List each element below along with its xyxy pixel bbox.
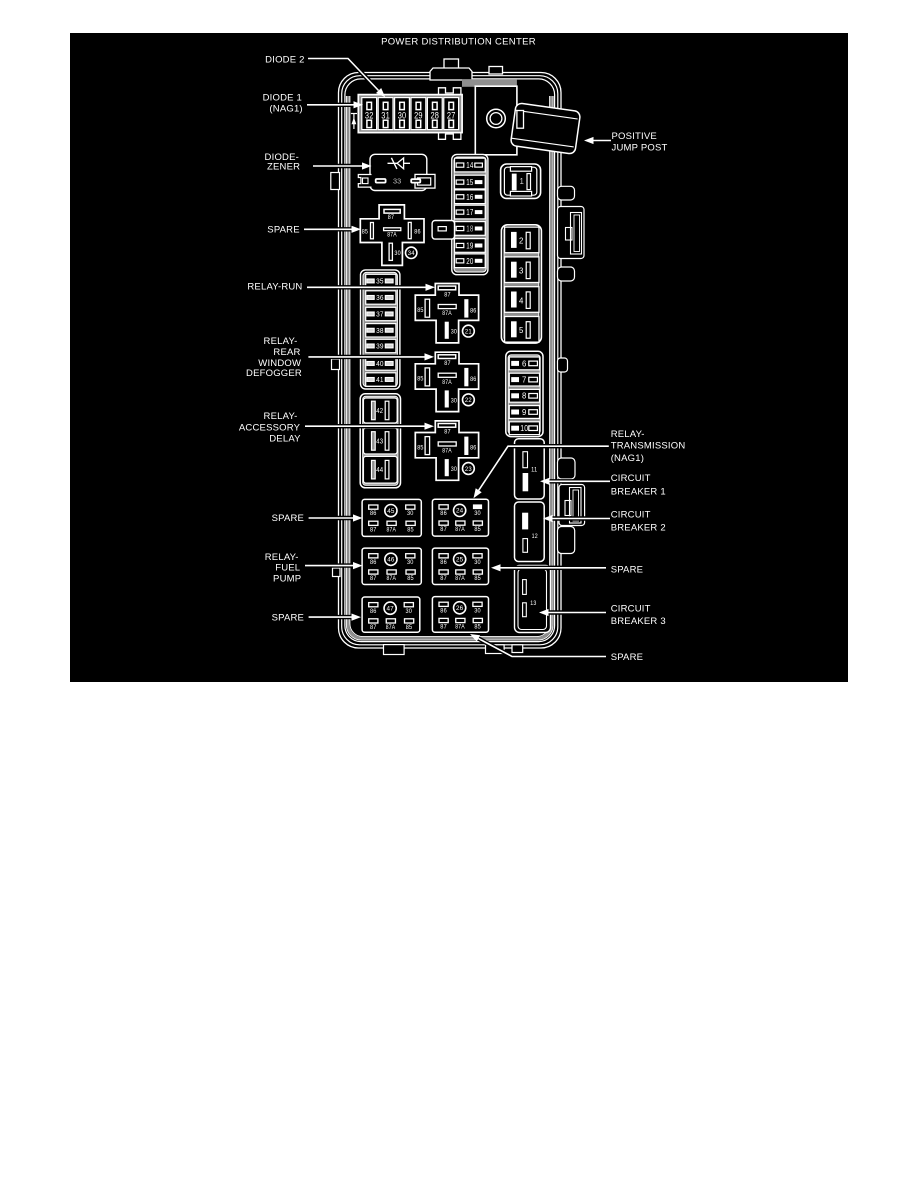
svg-text:87: 87: [440, 624, 447, 631]
svg-text:85: 85: [406, 624, 413, 631]
svg-text:46: 46: [387, 557, 394, 564]
svg-text:6: 6: [522, 359, 527, 368]
svg-text:SPARE: SPARE: [611, 652, 644, 663]
svg-text:85: 85: [417, 444, 424, 451]
svg-text:8: 8: [522, 392, 527, 401]
svg-text:87: 87: [370, 526, 377, 533]
svg-text:45: 45: [387, 508, 394, 515]
svg-text:DEFOGGER: DEFOGGER: [246, 368, 302, 379]
svg-text:CIRCUIT: CIRCUIT: [611, 510, 651, 521]
svg-text:87: 87: [444, 360, 451, 367]
svg-text:87: 87: [444, 429, 451, 436]
svg-text:30: 30: [451, 329, 458, 336]
svg-text:11: 11: [531, 467, 537, 474]
svg-text:37: 37: [376, 310, 384, 319]
svg-text:RELAY-: RELAY-: [264, 336, 298, 347]
svg-text:BREAKER 2: BREAKER 2: [611, 523, 666, 534]
svg-text:DIODE 1: DIODE 1: [263, 92, 302, 103]
svg-text:21: 21: [465, 328, 472, 335]
svg-text:ACCESSORY: ACCESSORY: [239, 423, 301, 434]
svg-text:86: 86: [414, 228, 421, 235]
svg-text:24: 24: [456, 508, 463, 515]
svg-text:86: 86: [440, 559, 447, 566]
svg-text:36: 36: [376, 293, 384, 302]
svg-text:(NAG1): (NAG1): [611, 453, 644, 464]
svg-text:23: 23: [465, 466, 472, 473]
svg-text:86: 86: [370, 559, 377, 566]
svg-text:87A: 87A: [442, 310, 452, 317]
svg-text:(NAG1): (NAG1): [269, 104, 302, 115]
svg-text:30: 30: [474, 607, 481, 614]
svg-text:5: 5: [519, 326, 524, 335]
svg-text:85: 85: [407, 575, 414, 582]
svg-text:9: 9: [522, 408, 527, 417]
svg-text:RELAY-RUN: RELAY-RUN: [247, 282, 302, 293]
svg-text:85: 85: [474, 526, 481, 533]
svg-text:87: 87: [444, 291, 451, 298]
svg-text:86: 86: [470, 445, 477, 452]
svg-text:17: 17: [466, 208, 473, 217]
svg-text:87A: 87A: [455, 624, 465, 631]
svg-text:87A: 87A: [442, 448, 452, 455]
svg-text:25: 25: [456, 557, 463, 564]
svg-text:85: 85: [362, 228, 369, 235]
svg-text:27: 27: [447, 110, 456, 120]
svg-text:14: 14: [466, 161, 473, 170]
svg-text:JUMP POST: JUMP POST: [612, 143, 668, 154]
svg-text:86: 86: [370, 510, 377, 517]
svg-text:85: 85: [474, 575, 481, 582]
svg-text:30: 30: [451, 397, 458, 404]
svg-text:RELAY-: RELAY-: [265, 552, 299, 563]
svg-text:4: 4: [519, 296, 524, 305]
svg-text:40: 40: [376, 359, 384, 368]
svg-text:2: 2: [519, 237, 524, 246]
svg-text:86: 86: [370, 608, 377, 615]
svg-text:34: 34: [408, 250, 415, 257]
svg-text:1: 1: [520, 177, 525, 186]
svg-text:86: 86: [440, 607, 447, 614]
svg-text:30: 30: [407, 559, 414, 566]
svg-text:CIRCUIT: CIRCUIT: [611, 603, 651, 614]
svg-text:12: 12: [532, 533, 538, 540]
svg-text:POSITIVE: POSITIVE: [612, 131, 657, 142]
svg-text:85: 85: [474, 624, 481, 631]
svg-text:REAR: REAR: [273, 347, 300, 358]
svg-text:85: 85: [407, 526, 414, 533]
svg-text:18: 18: [466, 225, 473, 234]
svg-text:BREAKER 3: BREAKER 3: [611, 616, 666, 627]
svg-text:28: 28: [431, 110, 440, 120]
svg-text:DELAY: DELAY: [269, 433, 301, 444]
svg-text:PUMP: PUMP: [273, 574, 301, 585]
svg-text:87: 87: [440, 526, 447, 533]
svg-text:3: 3: [519, 267, 524, 276]
svg-text:30: 30: [406, 608, 413, 615]
svg-text:13: 13: [530, 600, 536, 607]
svg-text:87: 87: [370, 575, 377, 582]
svg-text:87A: 87A: [387, 232, 397, 239]
svg-text:32: 32: [365, 110, 374, 120]
svg-text:85: 85: [417, 307, 424, 314]
svg-text:87: 87: [370, 624, 377, 631]
svg-text:41: 41: [376, 375, 384, 384]
svg-text:19: 19: [466, 242, 473, 251]
svg-text:31: 31: [381, 110, 390, 120]
svg-text:DIODE 2: DIODE 2: [265, 54, 304, 65]
svg-text:39: 39: [376, 342, 384, 351]
svg-text:SPARE: SPARE: [267, 224, 300, 235]
svg-text:22: 22: [465, 397, 472, 404]
svg-text:FUEL: FUEL: [275, 563, 300, 574]
svg-text:87A: 87A: [387, 526, 397, 533]
svg-text:POWER DISTRIBUTION CENTER: POWER DISTRIBUTION CENTER: [381, 36, 536, 47]
svg-text:87: 87: [440, 575, 447, 582]
svg-text:30: 30: [398, 110, 407, 120]
svg-text:87A: 87A: [455, 575, 465, 582]
svg-text:15: 15: [466, 178, 473, 187]
svg-text:30: 30: [407, 510, 414, 517]
svg-text:SPARE: SPARE: [611, 564, 644, 575]
svg-text:RELAY-: RELAY-: [611, 429, 645, 440]
svg-text:44: 44: [376, 467, 383, 474]
svg-text:33: 33: [393, 177, 402, 186]
svg-text:26: 26: [456, 605, 463, 612]
svg-text:30: 30: [451, 466, 458, 473]
svg-text:87A: 87A: [386, 624, 396, 631]
svg-text:ZENER: ZENER: [267, 161, 300, 172]
svg-text:38: 38: [376, 326, 384, 335]
svg-text:47: 47: [386, 606, 393, 613]
svg-text:BREAKER 1: BREAKER 1: [611, 486, 666, 497]
svg-text:85: 85: [417, 376, 424, 383]
svg-text:CIRCUIT: CIRCUIT: [611, 473, 651, 484]
svg-text:30: 30: [474, 510, 481, 517]
svg-text:30: 30: [474, 559, 481, 566]
svg-text:87A: 87A: [387, 575, 397, 582]
svg-text:TRANSMISSION: TRANSMISSION: [611, 441, 686, 452]
svg-text:16: 16: [466, 193, 473, 202]
svg-text:42: 42: [376, 408, 383, 415]
svg-text:30: 30: [394, 250, 401, 257]
svg-text:86: 86: [440, 510, 447, 517]
svg-text:10: 10: [520, 424, 528, 433]
svg-text:43: 43: [376, 438, 383, 445]
svg-text:87A: 87A: [455, 526, 465, 533]
svg-text:7: 7: [522, 376, 527, 385]
svg-text:86: 86: [470, 307, 477, 314]
svg-text:RELAY-: RELAY-: [264, 411, 298, 422]
svg-text:86: 86: [470, 376, 477, 383]
svg-text:SPARE: SPARE: [272, 513, 305, 524]
svg-text:SPARE: SPARE: [272, 612, 305, 623]
svg-text:35: 35: [376, 277, 384, 286]
svg-text:87A: 87A: [442, 379, 452, 386]
svg-text:29: 29: [414, 110, 423, 120]
svg-text:87: 87: [388, 214, 395, 221]
svg-text:20: 20: [466, 257, 473, 266]
